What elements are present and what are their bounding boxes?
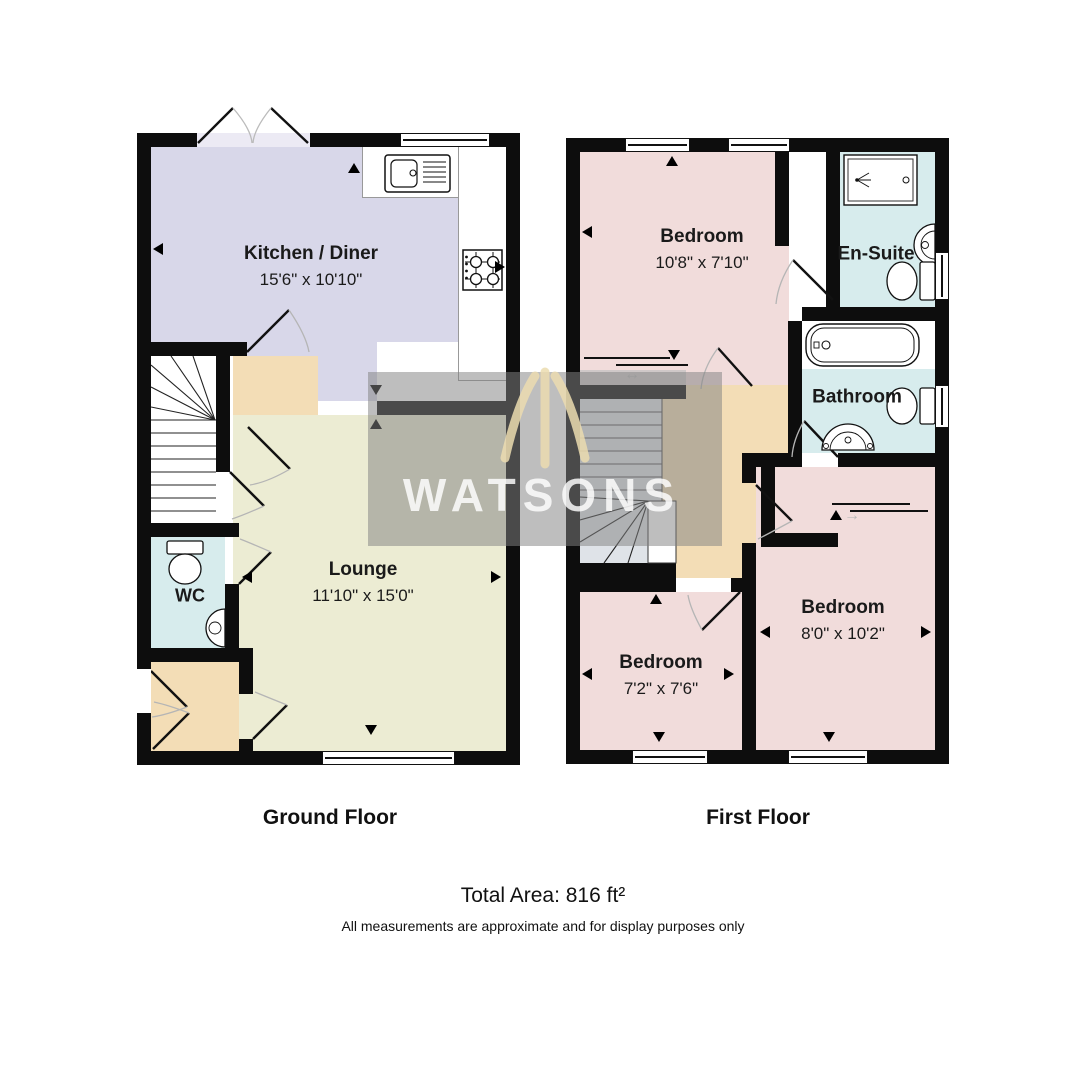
wall-bedroom2-left-upper	[742, 467, 756, 483]
wall-wc-top	[151, 523, 239, 537]
kitchen-label: Kitchen / Diner 15'6" x 10'10"	[244, 241, 378, 291]
floorplan-canvas: Kitchen / Diner 15'6" x 10'10" Lounge 11…	[0, 0, 1087, 1080]
bedroom3-label: Bedroom 7'2" x 7'6"	[619, 650, 702, 700]
ground-stairs	[151, 356, 216, 523]
slide-arrow-bedroom2: →	[844, 507, 860, 525]
bedroom2-name: Bedroom	[801, 597, 884, 618]
bedroom3-name: Bedroom	[619, 652, 702, 673]
front-door-opening	[137, 669, 151, 713]
ensuite-label: En-Suite	[837, 242, 914, 269]
ensuite-window	[935, 252, 949, 300]
kitchen-name: Kitchen / Diner	[244, 243, 378, 264]
wall-kitchen-stairs	[151, 342, 247, 356]
bedroom1-window-left	[625, 138, 690, 152]
bathroom-name: Bathroom	[812, 387, 902, 408]
wall-bathroom-left	[788, 321, 802, 453]
marker-bedroom3-right	[724, 668, 734, 680]
marker-bedroom1-left	[582, 226, 592, 238]
bedroom1-window-right	[728, 138, 790, 152]
wall-ensuite-left	[826, 152, 840, 307]
first-floor-caption: First Floor	[706, 806, 810, 830]
marker-kitchen-left	[153, 243, 163, 255]
lounge-label: Lounge 11'10" x 15'0"	[312, 557, 413, 607]
marker-lounge-down	[365, 725, 377, 735]
bedroom3-window	[632, 750, 708, 764]
wall-bathroom-bottom-left	[742, 453, 802, 467]
marker-bedroom3-down	[653, 732, 665, 742]
bedroom1-name: Bedroom	[660, 226, 743, 247]
marker-bedroom2-down	[823, 732, 835, 742]
wc-label: WC	[175, 583, 205, 608]
bedroom2-dims: 8'0" x 10'2"	[801, 621, 885, 645]
marker-kitchen-right	[495, 261, 505, 273]
marker-bedroom1-up	[666, 156, 678, 166]
bath-nook	[802, 321, 935, 369]
wall-hall-right-upper	[239, 662, 253, 694]
marker-bedroom2-wardrobe	[830, 510, 842, 520]
kitchen-window	[400, 133, 490, 147]
bedroom2-window	[788, 750, 868, 764]
bathroom-window	[935, 385, 949, 428]
entrance-hall	[151, 662, 239, 751]
french-door-opening	[197, 133, 310, 147]
marker-bedroom2-right	[921, 626, 931, 638]
marker-bedroom1-down	[668, 350, 680, 360]
wall-stairs-right	[216, 356, 230, 472]
wall-bathroom-bottom-right	[838, 453, 935, 467]
marker-lounge-right	[491, 571, 501, 583]
marker-lounge-left	[242, 571, 252, 583]
total-area-text: Total Area: 816 ft²	[461, 884, 626, 908]
wall-wc-right	[225, 584, 239, 648]
lounge-name: Lounge	[329, 559, 398, 580]
bathroom-label: Bathroom	[812, 385, 902, 412]
wall-ensuite-bath	[802, 307, 935, 321]
landing-strip	[676, 563, 742, 578]
wall-below-stairs	[580, 563, 676, 592]
watermark-text: WATSONS	[362, 468, 722, 522]
bedroom1-dims: 10'8" x 7'10"	[655, 250, 748, 274]
disclaimer-text: All measurements are approximate and for…	[341, 918, 744, 934]
wall-alcove-bottom	[761, 533, 838, 547]
wall-wc-bottom	[151, 648, 253, 662]
wall-bedroom2-left-lower	[742, 543, 756, 750]
ensuite-name: En-Suite	[837, 244, 914, 265]
ensuite-room	[840, 152, 935, 307]
marker-kitchen-up	[348, 163, 360, 173]
bedroom3-dims: 7'2" x 7'6"	[619, 676, 702, 700]
marker-bedroom3-left	[582, 668, 592, 680]
marker-bedroom2-left	[760, 626, 770, 638]
wall-bedroom3-top-right	[731, 578, 756, 592]
lounge-dims: 11'10" x 15'0"	[312, 583, 413, 607]
kitchen-door-opening	[247, 342, 318, 356]
wall-hall-right-lower	[239, 739, 253, 751]
bedroom2-label: Bedroom 8'0" x 10'2"	[801, 595, 885, 645]
wall-bedroom1-right	[775, 152, 789, 246]
lounge-window	[322, 751, 455, 765]
marker-bedroom3-up	[650, 594, 662, 604]
ground-floor-caption: Ground Floor	[263, 806, 397, 830]
kitchen-dims: 15'6" x 10'10"	[244, 267, 378, 291]
wc-name: WC	[175, 585, 205, 605]
bedroom1-label: Bedroom 10'8" x 7'10"	[655, 224, 748, 274]
